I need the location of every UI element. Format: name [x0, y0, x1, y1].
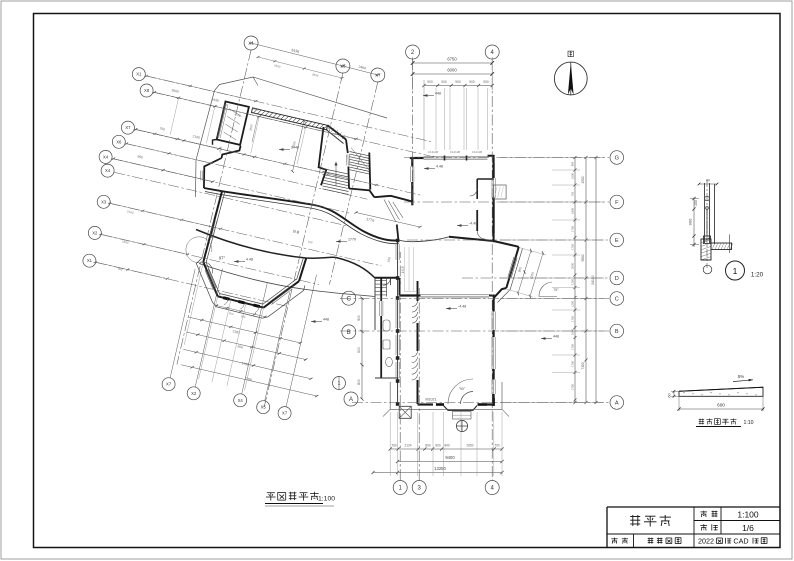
- svg-text:E: E: [615, 238, 619, 244]
- svg-text:4500: 4500: [581, 176, 585, 183]
- svg-text:900: 900: [455, 80, 461, 84]
- svg-text:X2: X2: [92, 230, 98, 235]
- svg-text:97°: 97°: [219, 256, 226, 261]
- svg-text:2000: 2000: [571, 263, 575, 269]
- svg-text:A: A: [349, 397, 353, 403]
- svg-text:A: A: [615, 401, 619, 407]
- svg-text:1200: 1200: [571, 301, 575, 307]
- svg-text:6000: 6000: [447, 68, 457, 73]
- svg-text:X8: X8: [144, 88, 150, 93]
- svg-text:1:100: 1:100: [318, 496, 335, 503]
- svg-text:1800: 1800: [571, 208, 575, 214]
- svg-text:"90": "90": [459, 387, 466, 391]
- svg-text:X3: X3: [101, 199, 107, 204]
- svg-text:2124: 2124: [404, 444, 411, 448]
- svg-text:C: C: [347, 296, 352, 302]
- svg-text:X5: X5: [261, 405, 267, 410]
- svg-text:1750: 1750: [571, 344, 575, 350]
- svg-text:900: 900: [469, 80, 475, 84]
- svg-text:C1211B: C1211B: [472, 150, 482, 154]
- svg-text:900: 900: [483, 80, 489, 84]
- svg-text:448: 448: [435, 92, 441, 96]
- svg-text:1770: 1770: [348, 238, 356, 242]
- svg-text:B: B: [347, 330, 351, 336]
- svg-text:1: 1: [733, 266, 738, 276]
- svg-text:40: 40: [706, 179, 710, 183]
- svg-text:D: D: [615, 276, 619, 282]
- svg-text:448: 448: [553, 335, 559, 339]
- svg-text:1:10: 1:10: [743, 420, 753, 426]
- svg-text:-4.48: -4.48: [458, 305, 466, 309]
- svg-text:600: 600: [717, 402, 725, 407]
- svg-text:1750: 1750: [571, 244, 575, 250]
- svg-text:1:20: 1:20: [751, 272, 764, 279]
- svg-text:1:100: 1:100: [737, 509, 759, 519]
- svg-text:C1211B: C1211B: [450, 150, 460, 154]
- svg-text:1750: 1750: [571, 226, 575, 232]
- svg-text:900: 900: [427, 80, 433, 84]
- svg-text:900: 900: [441, 80, 447, 84]
- svg-text:6750: 6750: [447, 57, 457, 62]
- svg-text:900: 900: [688, 218, 693, 225]
- svg-text:5%: 5%: [738, 374, 744, 379]
- svg-text:2750: 2750: [571, 384, 575, 390]
- svg-text:X7: X7: [125, 125, 131, 130]
- svg-text:1750: 1750: [571, 316, 575, 322]
- svg-text:C: C: [615, 297, 619, 303]
- svg-text:1:0.8: 1:0.8: [401, 266, 405, 273]
- svg-text:X1: X1: [87, 258, 93, 263]
- svg-text:1500: 1500: [571, 173, 575, 179]
- svg-text:X6: X6: [116, 139, 122, 144]
- svg-text:-4.48: -4.48: [469, 222, 477, 226]
- svg-text:1750: 1750: [571, 361, 575, 367]
- svg-text:X4: X4: [105, 168, 111, 173]
- svg-text:G: G: [615, 156, 619, 162]
- svg-text:13250: 13250: [434, 466, 446, 471]
- svg-text:4.48: 4.48: [436, 165, 443, 169]
- svg-text:B: B: [615, 329, 619, 335]
- svg-text:X2: X2: [191, 391, 197, 396]
- svg-text:7150: 7150: [581, 362, 585, 369]
- svg-text:X7: X7: [166, 382, 172, 387]
- svg-text:150: 150: [694, 200, 698, 206]
- svg-text:2650: 2650: [466, 444, 473, 448]
- svg-text:900: 900: [357, 315, 361, 321]
- svg-text:700: 700: [494, 444, 500, 448]
- svg-text:600: 600: [435, 444, 441, 448]
- svg-text:750: 750: [571, 191, 575, 196]
- svg-text:C1211B: C1211B: [428, 150, 438, 154]
- svg-text:1250: 1250: [571, 279, 575, 285]
- svg-text:4.48: 4.48: [246, 258, 253, 262]
- svg-text:X7: X7: [282, 411, 288, 416]
- svg-text:800: 800: [425, 444, 431, 448]
- svg-text:X1: X1: [136, 72, 142, 77]
- svg-text:1/6: 1/6: [742, 523, 754, 533]
- svg-text:760: 760: [391, 444, 397, 448]
- svg-text:24150: 24150: [591, 275, 595, 285]
- svg-text:75°: 75°: [553, 288, 559, 292]
- svg-text:X4: X4: [103, 154, 109, 159]
- svg-text:5800: 5800: [581, 254, 585, 261]
- svg-text:840: 840: [444, 444, 450, 448]
- svg-text:CAD: CAD: [733, 537, 748, 546]
- svg-text:448: 448: [323, 318, 329, 322]
- svg-text:M1021: M1021: [426, 398, 437, 402]
- svg-text:2022: 2022: [698, 537, 714, 546]
- svg-text:600: 600: [357, 347, 361, 353]
- svg-text:X4: X4: [238, 398, 244, 403]
- svg-text:60: 60: [668, 393, 672, 397]
- svg-text:F: F: [615, 200, 619, 206]
- svg-text:9400: 9400: [445, 455, 455, 460]
- svg-text:1000: 1000: [571, 329, 575, 335]
- svg-text:900: 900: [571, 161, 575, 166]
- svg-text:800: 800: [357, 379, 361, 385]
